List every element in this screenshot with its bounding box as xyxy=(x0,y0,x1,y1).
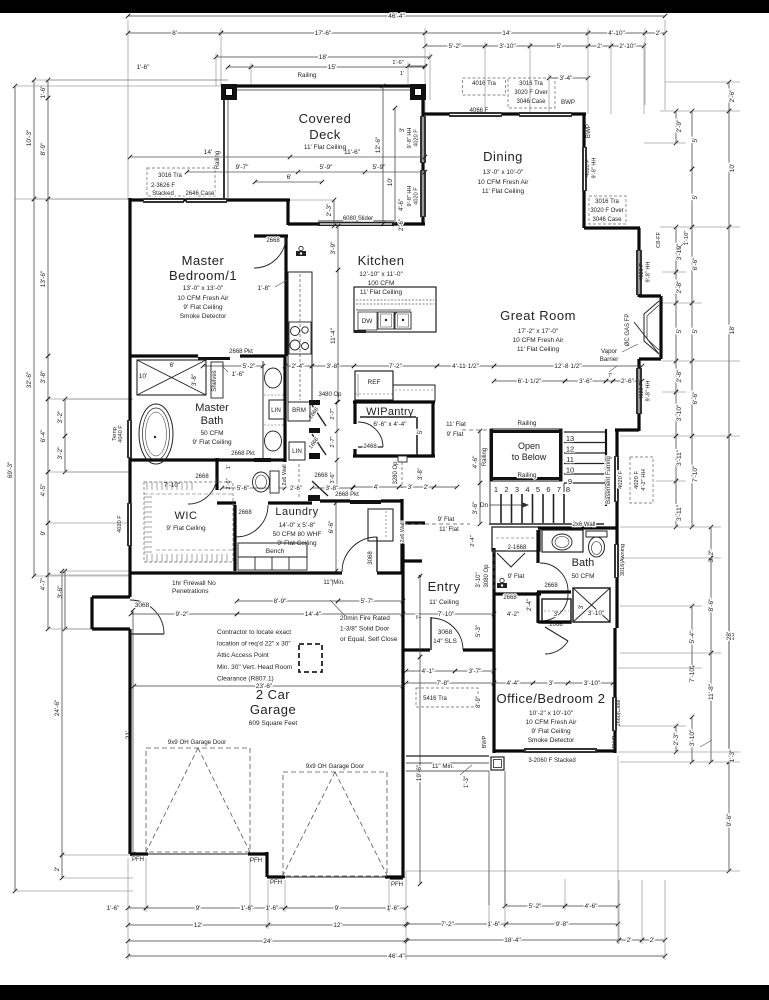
svg-text:Bath: Bath xyxy=(572,557,595,569)
svg-text:2x6 Wall: 2x6 Wall xyxy=(400,521,406,542)
svg-text:2668: 2668 xyxy=(238,510,252,516)
svg-text:14’-0" x 5’-8": 14’-0" x 5’-8" xyxy=(279,522,316,529)
svg-text:2'-6": 2'-6" xyxy=(729,89,736,103)
svg-text:3': 3' xyxy=(408,484,413,491)
svg-text:3068: 3068 xyxy=(135,602,150,609)
svg-text:Bench: Bench xyxy=(266,548,285,555)
svg-text:PFH: PFH xyxy=(132,857,144,863)
svg-text:100 CFM: 100 CFM xyxy=(368,280,395,287)
svg-text:3068: 3068 xyxy=(368,551,374,565)
svg-text:12’-10" x 11’-0": 12’-10" x 11’-0" xyxy=(359,271,403,278)
svg-text:17'-6": 17'-6" xyxy=(315,30,332,37)
svg-text:2660|Case: 2660|Case xyxy=(616,700,622,727)
svg-text:2: 2 xyxy=(504,485,508,494)
svg-text:28': 28' xyxy=(726,632,733,640)
svg-text:46'-4": 46'-4" xyxy=(388,953,405,960)
svg-text:3016 Tra: 3016 Tra xyxy=(519,81,543,87)
svg-text:4020 F: 4020 F xyxy=(634,471,640,490)
svg-text:14" SLS: 14" SLS xyxy=(433,638,457,645)
svg-text:69'-3": 69'-3" xyxy=(7,461,14,478)
svg-text:3'-10": 3'-10" xyxy=(689,729,696,746)
svg-text:4020 F: 4020 F xyxy=(618,471,624,490)
svg-text:PFH: PFH xyxy=(391,882,403,888)
svg-text:3'-8": 3'-8" xyxy=(40,370,47,384)
svg-text:3': 3' xyxy=(554,612,558,618)
svg-text:4'-5": 4'-5" xyxy=(40,483,47,497)
svg-text:3'-10": 3'-10" xyxy=(588,610,605,617)
svg-text:2'-9": 2'-9" xyxy=(676,119,683,133)
svg-text:3'-2": 3'-2" xyxy=(57,410,64,424)
svg-text:8: 8 xyxy=(566,485,570,494)
svg-text:17’-2" x 17’-0": 17’-2" x 17’-0" xyxy=(518,328,559,335)
svg-text:10 CFM Fresh Air: 10 CFM Fresh Air xyxy=(513,337,565,344)
svg-text:3-2060 F Stacked: 3-2060 F Stacked xyxy=(528,758,575,764)
svg-text:3'-6": 3'-6" xyxy=(472,501,479,515)
svg-text:5': 5' xyxy=(557,43,562,50)
svg-text:6'-6": 6'-6" xyxy=(692,257,699,271)
svg-text:1'-10": 1'-10" xyxy=(684,231,690,246)
svg-text:9’-8" HH: 9’-8" HH xyxy=(592,158,598,179)
svg-text:3'-4": 3'-4" xyxy=(560,75,574,82)
svg-text:11' Ceiling: 11' Ceiling xyxy=(429,599,459,606)
svg-text:20min Fire Rated: 20min Fire Rated xyxy=(340,615,390,622)
svg-text:BWP: BWP xyxy=(482,735,488,748)
svg-text:6': 6' xyxy=(170,362,175,369)
svg-text:BWP: BWP xyxy=(585,124,592,138)
svg-text:2-3626 F: 2-3626 F xyxy=(151,183,175,189)
svg-text:3'-10": 3'-10" xyxy=(499,43,516,50)
svg-text:1hr Firewall No: 1hr Firewall No xyxy=(172,580,216,587)
svg-text:Dn: Dn xyxy=(480,502,489,509)
svg-text:11" Min.: 11" Min. xyxy=(432,763,454,770)
svg-text:Bedroom/1: Bedroom/1 xyxy=(169,268,237,283)
svg-text:WIPantry: WIPantry xyxy=(366,406,414,418)
svg-text:11' Flat Ceiling: 11' Flat Ceiling xyxy=(517,346,560,353)
svg-text:10 CFM Fresh Air: 10 CFM Fresh Air xyxy=(478,179,530,186)
svg-text:7'-10": 7'-10" xyxy=(692,465,699,482)
svg-text:2': 2' xyxy=(597,43,602,50)
svg-text:Clearance (R807.1): Clearance (R807.1) xyxy=(217,675,274,682)
svg-text:4'-6": 4'-6" xyxy=(472,455,479,469)
svg-text:2'-6": 2'-6" xyxy=(621,378,635,385)
svg-text:13: 13 xyxy=(566,434,574,443)
svg-text:9’-8" HH: 9’-8" HH xyxy=(407,128,413,149)
svg-text:9': 9' xyxy=(335,905,340,912)
svg-text:4040 F: 4040 F xyxy=(118,425,124,443)
svg-text:Barrier: Barrier xyxy=(600,356,619,363)
svg-text:5'-9": 5'-9" xyxy=(320,164,334,171)
svg-text:9'-2": 9'-2" xyxy=(176,611,190,618)
svg-text:Open: Open xyxy=(518,441,540,451)
svg-text:location of req’d 22" x 30": location of req’d 22" x 30" xyxy=(217,641,291,648)
svg-text:5': 5' xyxy=(692,195,699,200)
svg-text:5'-3": 5'-3" xyxy=(476,625,482,637)
svg-text:4'-11 1/2": 4'-11 1/2" xyxy=(452,363,480,370)
svg-text:3'-6": 3'-6" xyxy=(330,472,336,483)
svg-text:2'-3": 2'-3" xyxy=(673,732,680,746)
svg-text:3'-6": 3'-6" xyxy=(57,585,64,599)
svg-text:8'-9": 8'-9" xyxy=(274,598,288,605)
svg-text:2646 Case: 2646 Case xyxy=(185,191,215,197)
svg-text:3'-2": 3'-2" xyxy=(57,446,64,460)
svg-text:4020 F: 4020 F xyxy=(414,187,420,205)
svg-text:Min. 30" Vert. Head Room: Min. 30" Vert. Head Room xyxy=(217,664,292,671)
svg-text:or Equal, Self Close: or Equal, Self Close xyxy=(340,636,398,643)
svg-text:9' Flat Ceiling: 9' Flat Ceiling xyxy=(192,439,232,446)
svg-text:4': 4' xyxy=(374,484,379,491)
svg-text:9' Flat Ceiling: 9' Flat Ceiling xyxy=(531,728,571,735)
svg-text:9'-7": 9'-7" xyxy=(236,164,250,171)
svg-text:4'-6": 4'-6" xyxy=(399,199,405,211)
svg-text:1'-6": 1'-6" xyxy=(241,905,255,912)
svg-text:Railing: Railing xyxy=(482,448,488,466)
svg-text:10 CFM Fresh Air: 10 CFM Fresh Air xyxy=(526,719,578,726)
svg-text:5'-2": 5'-2" xyxy=(449,43,463,50)
svg-text:2'-4": 2'-4" xyxy=(292,363,306,370)
svg-text:11"|Min.: 11"|Min. xyxy=(323,580,345,586)
svg-text:Railing: Railing xyxy=(518,420,537,427)
svg-text:3280 Op: 3280 Op xyxy=(393,461,399,485)
svg-text:2668: 2668 xyxy=(195,474,209,480)
svg-text:4020 F: 4020 F xyxy=(117,515,123,533)
svg-text:REF: REF xyxy=(368,379,381,386)
svg-text:14': 14' xyxy=(204,149,212,156)
svg-text:5'-4": 5'-4" xyxy=(689,630,696,644)
svg-text:3': 3' xyxy=(400,128,406,132)
svg-text:3'-10": 3'-10" xyxy=(676,404,683,421)
svg-text:11: 11 xyxy=(566,455,574,464)
svg-text:BWP: BWP xyxy=(612,735,618,748)
svg-text:2-1668: 2-1668 xyxy=(508,545,527,551)
svg-text:to Below: to Below xyxy=(512,452,547,462)
svg-text:32'-6": 32'-6" xyxy=(26,371,33,388)
svg-text:1'-6": 1'-6" xyxy=(488,921,502,928)
svg-text:5': 5' xyxy=(692,138,699,143)
svg-text:Garage: Garage xyxy=(250,702,296,717)
svg-text:5'-7": 5'-7" xyxy=(361,598,375,605)
svg-text:6'-6": 6'-6" xyxy=(328,520,335,534)
svg-text:3'-10": 3'-10" xyxy=(584,680,601,687)
svg-text:3': 3' xyxy=(549,680,554,687)
svg-text:2668: 2668 xyxy=(503,595,517,601)
svg-text:2'-4": 2'-4" xyxy=(470,535,476,547)
svg-text:Laundry: Laundry xyxy=(275,506,318,518)
svg-text:13'-6": 13'-6" xyxy=(40,270,47,287)
svg-text:Bath: Bath xyxy=(201,415,224,427)
svg-text:3068: 3068 xyxy=(438,629,453,636)
svg-text:4020 F: 4020 F xyxy=(414,129,420,147)
svg-text:4016 Tra: 4016 Tra xyxy=(472,81,496,87)
svg-text:4'-4": 4'-4" xyxy=(507,680,521,687)
svg-text:1'-6": 1'-6" xyxy=(392,60,404,66)
svg-text:3'-11": 3'-11" xyxy=(676,449,683,466)
svg-text:9' Flat Ceiling: 9' Flat Ceiling xyxy=(166,525,206,532)
svg-text:5'-2": 5'-2" xyxy=(243,363,257,370)
svg-text:9'-6": 9'-6" xyxy=(726,813,733,827)
svg-text:23'-6": 23'-6" xyxy=(256,683,273,690)
svg-text:11'-6": 11'-6" xyxy=(344,149,361,156)
svg-text:9' Flat: 9' Flat xyxy=(438,516,455,523)
svg-text:8'-9": 8'-9" xyxy=(476,696,482,708)
svg-text:2'-3": 2'-3" xyxy=(326,203,333,217)
svg-text:3'-9": 3'-9" xyxy=(330,241,337,255)
svg-text:Covered: Covered xyxy=(299,111,352,126)
svg-text:4'-7": 4'-7" xyxy=(40,577,47,591)
svg-text:7': 7' xyxy=(608,373,612,379)
svg-text:LIN: LIN xyxy=(271,407,281,414)
svg-text:Dining: Dining xyxy=(483,149,523,164)
svg-text:7'-10": 7'-10" xyxy=(689,665,696,682)
svg-text:9’-8" HH: 9’-8" HH xyxy=(407,186,413,207)
svg-text:Penetrations: Penetrations xyxy=(172,588,209,595)
svg-text:5': 5' xyxy=(692,329,699,334)
svg-text:Entry: Entry xyxy=(428,579,461,594)
svg-text:12'-6": 12'-6" xyxy=(375,136,382,153)
svg-text:8': 8' xyxy=(172,30,177,37)
svg-text:5'-9": 5'-9" xyxy=(373,164,387,171)
svg-text:2'-6": 2'-6" xyxy=(290,486,302,492)
svg-text:2'-7": 2'-7" xyxy=(330,436,336,447)
svg-text:4'-10": 4'-10" xyxy=(608,30,625,37)
svg-text:1': 1' xyxy=(400,71,404,77)
svg-text:9': 9' xyxy=(40,531,47,536)
svg-text:9' Flat Ceiling: 9' Flat Ceiling xyxy=(183,304,223,311)
svg-text:BRM: BRM xyxy=(292,407,306,414)
svg-text:Great Room: Great Room xyxy=(500,308,576,323)
svg-text:18': 18' xyxy=(729,326,736,334)
svg-text:6': 6' xyxy=(287,174,292,181)
svg-text:3046 Case: 3046 Case xyxy=(592,217,622,223)
svg-text:1'-6": 1'-6" xyxy=(266,905,280,912)
svg-text:WIC: WIC xyxy=(175,510,198,522)
svg-text:14'-4": 14'-4" xyxy=(305,611,322,618)
svg-text:BWP: BWP xyxy=(561,99,575,106)
svg-text:18': 18' xyxy=(319,54,327,61)
svg-text:2'-7": 2'-7" xyxy=(330,408,336,419)
svg-text:PFH: PFH xyxy=(270,880,282,886)
svg-text:5': 5' xyxy=(676,329,683,334)
svg-text:3016 Tra: 3016 Tra xyxy=(158,173,182,179)
svg-text:1'-3": 1'-3" xyxy=(729,750,736,762)
svg-text:609 Square Feet: 609 Square Feet xyxy=(249,720,298,727)
svg-text:1'-6": 1'-6" xyxy=(232,371,246,378)
svg-text:1-3/8" Solid Door: 1-3/8" Solid Door xyxy=(340,626,390,633)
svg-text:6’-6" x 4’-4": 6’-6" x 4’-4" xyxy=(373,421,407,428)
svg-text:4020 F: 4020 F xyxy=(639,263,645,281)
svg-text:3'-7": 3'-7" xyxy=(469,668,483,675)
svg-text:50 CFM: 50 CFM xyxy=(571,573,594,580)
svg-text:24'-6": 24'-6" xyxy=(54,699,61,716)
svg-text:4'-6": 4'-6" xyxy=(585,903,599,910)
svg-text:3'-11": 3'-11" xyxy=(676,504,683,521)
svg-text:11' Flat: 11' Flat xyxy=(446,421,466,428)
svg-text:2668: 2668 xyxy=(314,473,328,479)
svg-text:2'-4": 2'-4" xyxy=(527,599,533,611)
svg-text:11' Flat Ceiling: 11' Flat Ceiling xyxy=(304,144,347,151)
svg-text:Railing: Railing xyxy=(298,72,317,79)
svg-text:Master: Master xyxy=(182,253,225,268)
svg-text:Master: Master xyxy=(195,402,229,414)
svg-text:24': 24' xyxy=(263,938,271,945)
svg-text:PFH: PFH xyxy=(250,858,262,864)
svg-text:3': 3' xyxy=(579,605,585,609)
svg-text:3'-8": 3'-8" xyxy=(192,374,198,386)
svg-text:6'-4": 6'-4" xyxy=(40,429,47,443)
svg-text:12': 12' xyxy=(194,922,202,929)
svg-text:2'-8": 2'-8" xyxy=(676,369,683,383)
svg-text:11' Flat Ceiling: 11' Flat Ceiling xyxy=(482,188,525,195)
svg-text:13’-0" x 10’-0": 13’-0" x 10’-0" xyxy=(483,169,524,176)
svg-text:4020 F: 4020 F xyxy=(639,382,645,400)
svg-text:3020 F Over: 3020 F Over xyxy=(590,208,623,214)
svg-text:3'-10": 3'-10" xyxy=(476,572,482,587)
svg-text:9x9 OH Garage Door: 9x9 OH Garage Door xyxy=(168,739,226,746)
svg-text:8'-9": 8'-9" xyxy=(40,142,47,156)
svg-text:4'-2" HH: 4'-2" HH xyxy=(641,469,647,491)
svg-text:50 CFM: 50 CFM xyxy=(200,430,223,437)
svg-text:Smoke Detector: Smoke Detector xyxy=(528,737,575,744)
svg-text:2': 2' xyxy=(54,867,61,872)
svg-text:10': 10' xyxy=(729,164,736,172)
svg-text:3080 Op: 3080 Op xyxy=(484,564,490,588)
svg-text:5: 5 xyxy=(536,485,540,494)
svg-text:3046 Case: 3046 Case xyxy=(516,99,546,105)
svg-text:13’-0" x 13’-0": 13’-0" x 13’-0" xyxy=(183,285,224,292)
svg-text:7'-2": 7'-2" xyxy=(441,921,455,928)
svg-text:5'-6": 5'-6" xyxy=(237,485,249,492)
svg-text:3016 Tra: 3016 Tra xyxy=(595,199,619,205)
svg-text:2': 2' xyxy=(656,30,661,37)
svg-text:6: 6 xyxy=(546,485,550,494)
svg-text:5'-2": 5'-2" xyxy=(529,903,543,910)
svg-text:2x6 Wall: 2x6 Wall xyxy=(573,522,596,528)
svg-text:11'-4": 11'-4" xyxy=(330,327,337,344)
svg-text:7'-2": 7'-2" xyxy=(389,363,403,370)
svg-text:Smoke Detector: Smoke Detector xyxy=(180,313,227,320)
svg-text:Contractor to locate exact: Contractor to locate exact xyxy=(217,629,291,636)
svg-text:2'-8": 2'-8" xyxy=(676,280,683,294)
svg-text:6080 Slider: 6080 Slider xyxy=(343,216,373,222)
svg-text:3: 3 xyxy=(515,485,519,494)
svg-text:Stacked: Stacked xyxy=(152,191,174,197)
svg-text:5416 Tra: 5416 Tra xyxy=(423,696,447,702)
svg-text:3'-6": 3'-6" xyxy=(579,378,593,385)
svg-text:8'-6": 8'-6" xyxy=(708,598,715,612)
svg-text:ØC GAS FP: ØC GAS FP xyxy=(625,314,631,347)
svg-text:3480 Op: 3480 Op xyxy=(318,392,342,398)
svg-text:6'-6": 6'-6" xyxy=(692,391,699,405)
svg-text:4020 F: 4020 F xyxy=(585,159,591,177)
svg-text:2': 2' xyxy=(627,937,632,944)
svg-text:9' Flat: 9' Flat xyxy=(508,573,525,580)
svg-text:DW: DW xyxy=(362,318,374,325)
svg-text:2': 2' xyxy=(650,937,655,944)
svg-text:2x6 Wall: 2x6 Wall xyxy=(282,464,288,485)
svg-text:7'-10": 7'-10" xyxy=(164,482,181,489)
svg-text:Attic Access Point: Attic Access Point xyxy=(217,652,269,659)
svg-text:2': 2' xyxy=(424,484,429,491)
svg-text:1: 1 xyxy=(494,485,498,494)
svg-text:10’-2" x 10’-10": 10’-2" x 10’-10" xyxy=(529,710,574,717)
svg-text:5': 5' xyxy=(418,430,424,434)
svg-text:1'-3": 1'-3" xyxy=(464,776,470,788)
svg-text:Office/Bedroom 2: Office/Bedroom 2 xyxy=(497,691,606,706)
svg-text:10': 10' xyxy=(139,373,147,380)
svg-text:2668 Pkt: 2668 Pkt xyxy=(335,492,359,498)
svg-text:11' Flat Ceiling: 11' Flat Ceiling xyxy=(360,289,403,296)
svg-text:4: 4 xyxy=(525,485,529,494)
svg-text:1'-8": 1'-8" xyxy=(258,285,272,292)
svg-text:11'-8": 11'-8" xyxy=(708,683,715,700)
svg-text:2668: 2668 xyxy=(544,583,558,589)
svg-text:2468: 2468 xyxy=(363,444,377,450)
svg-text:1'-6": 1'-6" xyxy=(387,905,401,912)
svg-text:Deck: Deck xyxy=(309,127,341,142)
svg-text:6'-1 1/2": 6'-1 1/2" xyxy=(518,378,542,385)
svg-text:Railing: Railing xyxy=(518,472,537,479)
svg-text:46'-4": 46'-4" xyxy=(388,13,405,20)
svg-text:Vapor: Vapor xyxy=(601,348,617,355)
svg-text:18'-4": 18'-4" xyxy=(504,937,521,944)
svg-text:10 CFM Fresh Air: 10 CFM Fresh Air xyxy=(178,295,230,302)
svg-text:9x9 OH Garage Door: 9x9 OH Garage Door xyxy=(306,763,364,770)
svg-text:11' Flat: 11' Flat xyxy=(439,526,459,533)
svg-text:4'-1": 4'-1" xyxy=(422,668,436,675)
svg-text:3020 F Over: 3020 F Over xyxy=(514,90,547,96)
svg-text:12'-8 1/2": 12'-8 1/2" xyxy=(554,363,582,370)
svg-text:Basement Furring: Basement Furring xyxy=(606,456,612,504)
svg-text:14': 14' xyxy=(502,30,510,37)
svg-text:1'-6": 1'-6" xyxy=(107,905,121,912)
svg-text:12': 12' xyxy=(333,922,341,929)
svg-text:3016|Awning: 3016|Awning xyxy=(620,544,626,576)
svg-text:15': 15' xyxy=(328,64,336,71)
svg-text:3'-8": 3'-8" xyxy=(418,468,424,480)
svg-text:2668 Pkt: 2668 Pkt xyxy=(229,349,253,355)
svg-text:12: 12 xyxy=(566,445,574,454)
svg-text:50 CFM 80 WHF: 50 CFM 80 WHF xyxy=(273,531,322,538)
svg-text:7: 7 xyxy=(557,485,561,494)
svg-text:9': 9' xyxy=(196,905,201,912)
svg-text:1': 1' xyxy=(226,465,232,469)
svg-text:10: 10 xyxy=(566,466,574,475)
svg-text:4'-2": 4'-2" xyxy=(507,611,519,618)
svg-text:2668: 2668 xyxy=(266,238,280,244)
svg-text:C8-FF: C8-FF xyxy=(656,231,662,247)
svg-text:1'-6": 1'-6" xyxy=(137,64,151,71)
svg-text:10'-3": 10'-3" xyxy=(26,129,33,146)
svg-text:1'-6": 1'-6" xyxy=(40,85,47,99)
svg-text:9'-8": 9'-8" xyxy=(556,921,570,928)
svg-text:9’-8" HH: 9’-8" HH xyxy=(646,381,652,402)
svg-text:19'-6": 19'-6" xyxy=(416,764,423,781)
svg-text:9' Flat: 9' Flat xyxy=(447,431,464,438)
svg-text:2668 Pkt: 2668 Pkt xyxy=(231,451,255,457)
svg-text:2'-10": 2'-10" xyxy=(619,43,636,50)
svg-text:3'-10": 3'-10" xyxy=(676,243,683,260)
svg-text:7'-8": 7'-8" xyxy=(437,680,451,687)
svg-text:2'-6": 2'-6" xyxy=(399,219,405,231)
svg-text:10': 10' xyxy=(387,178,394,186)
svg-text:Shelves: Shelves xyxy=(212,370,218,391)
svg-text:9’-8" HH: 9’-8" HH xyxy=(646,262,652,283)
svg-text:7'-10": 7'-10" xyxy=(438,611,455,618)
svg-text:Railing: Railing xyxy=(215,151,221,169)
svg-text:Kitchen: Kitchen xyxy=(358,253,405,268)
svg-text:LIN: LIN xyxy=(292,448,302,455)
